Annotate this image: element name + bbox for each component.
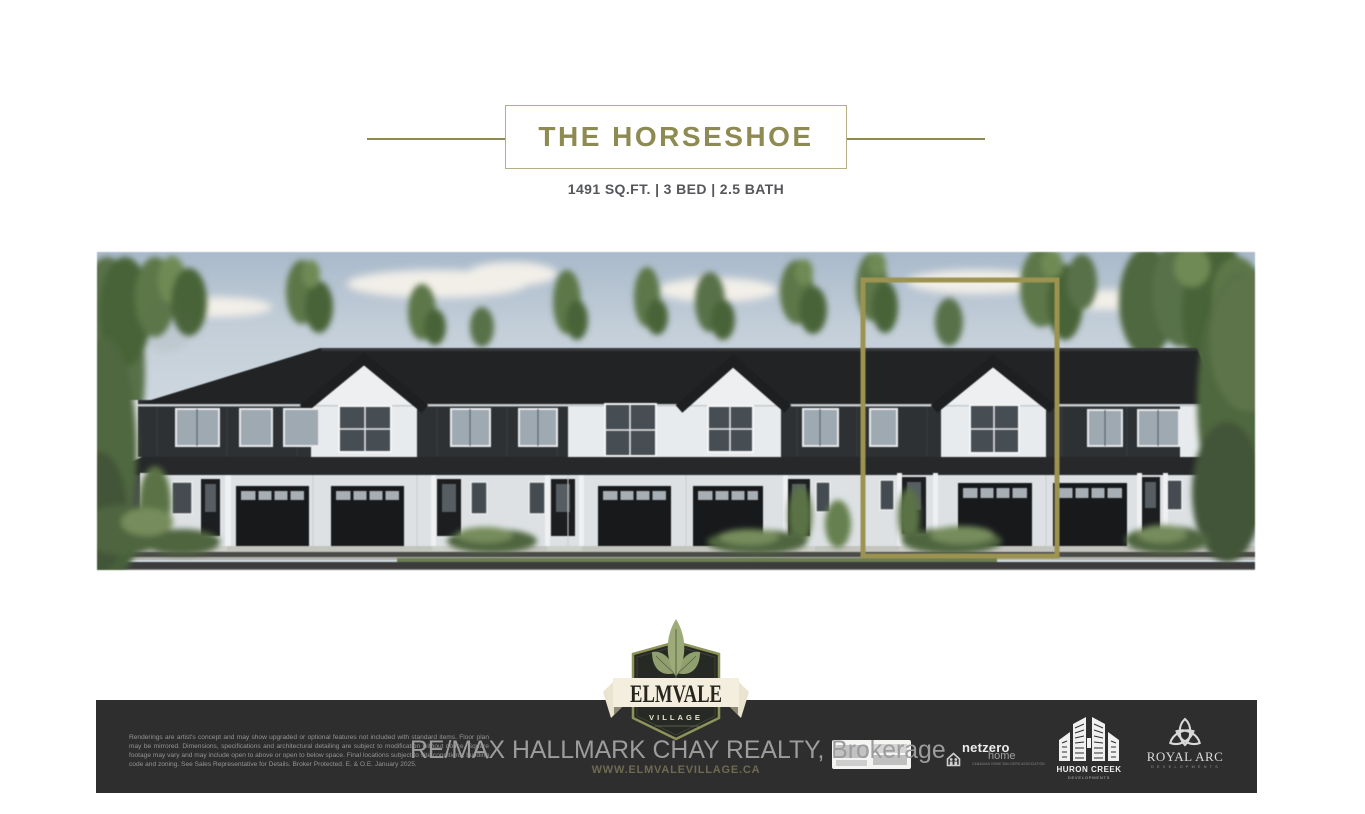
svg-text:HURON CREEK: HURON CREEK [1056, 765, 1121, 774]
svg-text:ELMVALE: ELMVALE [630, 681, 722, 708]
svg-text:ROYAL ARC: ROYAL ARC [1147, 749, 1224, 764]
svg-text:VILLAGE: VILLAGE [649, 713, 703, 722]
svg-text:DEVELOPMENTS: DEVELOPMENTS [1068, 775, 1111, 780]
svg-text:D E V E L O P M E N T S: D E V E L O P M E N T S [1151, 765, 1219, 769]
